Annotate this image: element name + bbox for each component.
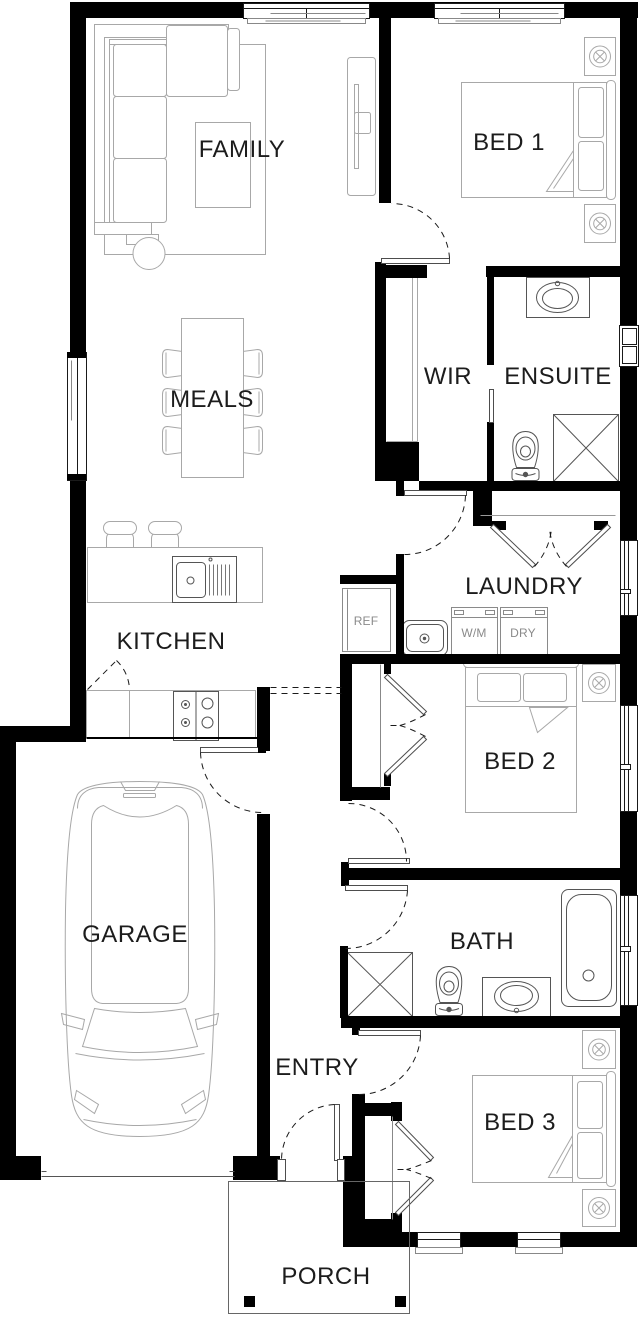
svg-text:FAMILY: FAMILY (199, 136, 286, 163)
svg-text:MEALS: MEALS (170, 386, 254, 413)
svg-text:BED 1: BED 1 (473, 129, 545, 156)
svg-text:BED 2: BED 2 (484, 748, 556, 775)
svg-text:KITCHEN: KITCHEN (117, 628, 226, 655)
svg-text:LAUNDRY: LAUNDRY (465, 573, 583, 600)
svg-text:BATH: BATH (450, 928, 514, 955)
svg-text:ENTRY: ENTRY (275, 1054, 358, 1081)
svg-text:WIR: WIR (424, 363, 472, 390)
svg-text:REF: REF (354, 614, 379, 628)
svg-text:DRY: DRY (510, 626, 536, 640)
svg-text:PORCH: PORCH (281, 1263, 370, 1290)
svg-text:W/M: W/M (461, 626, 486, 640)
svg-text:ENSUITE: ENSUITE (504, 363, 612, 390)
svg-text:BED 3: BED 3 (484, 1109, 556, 1136)
svg-text:GARAGE: GARAGE (82, 921, 188, 948)
